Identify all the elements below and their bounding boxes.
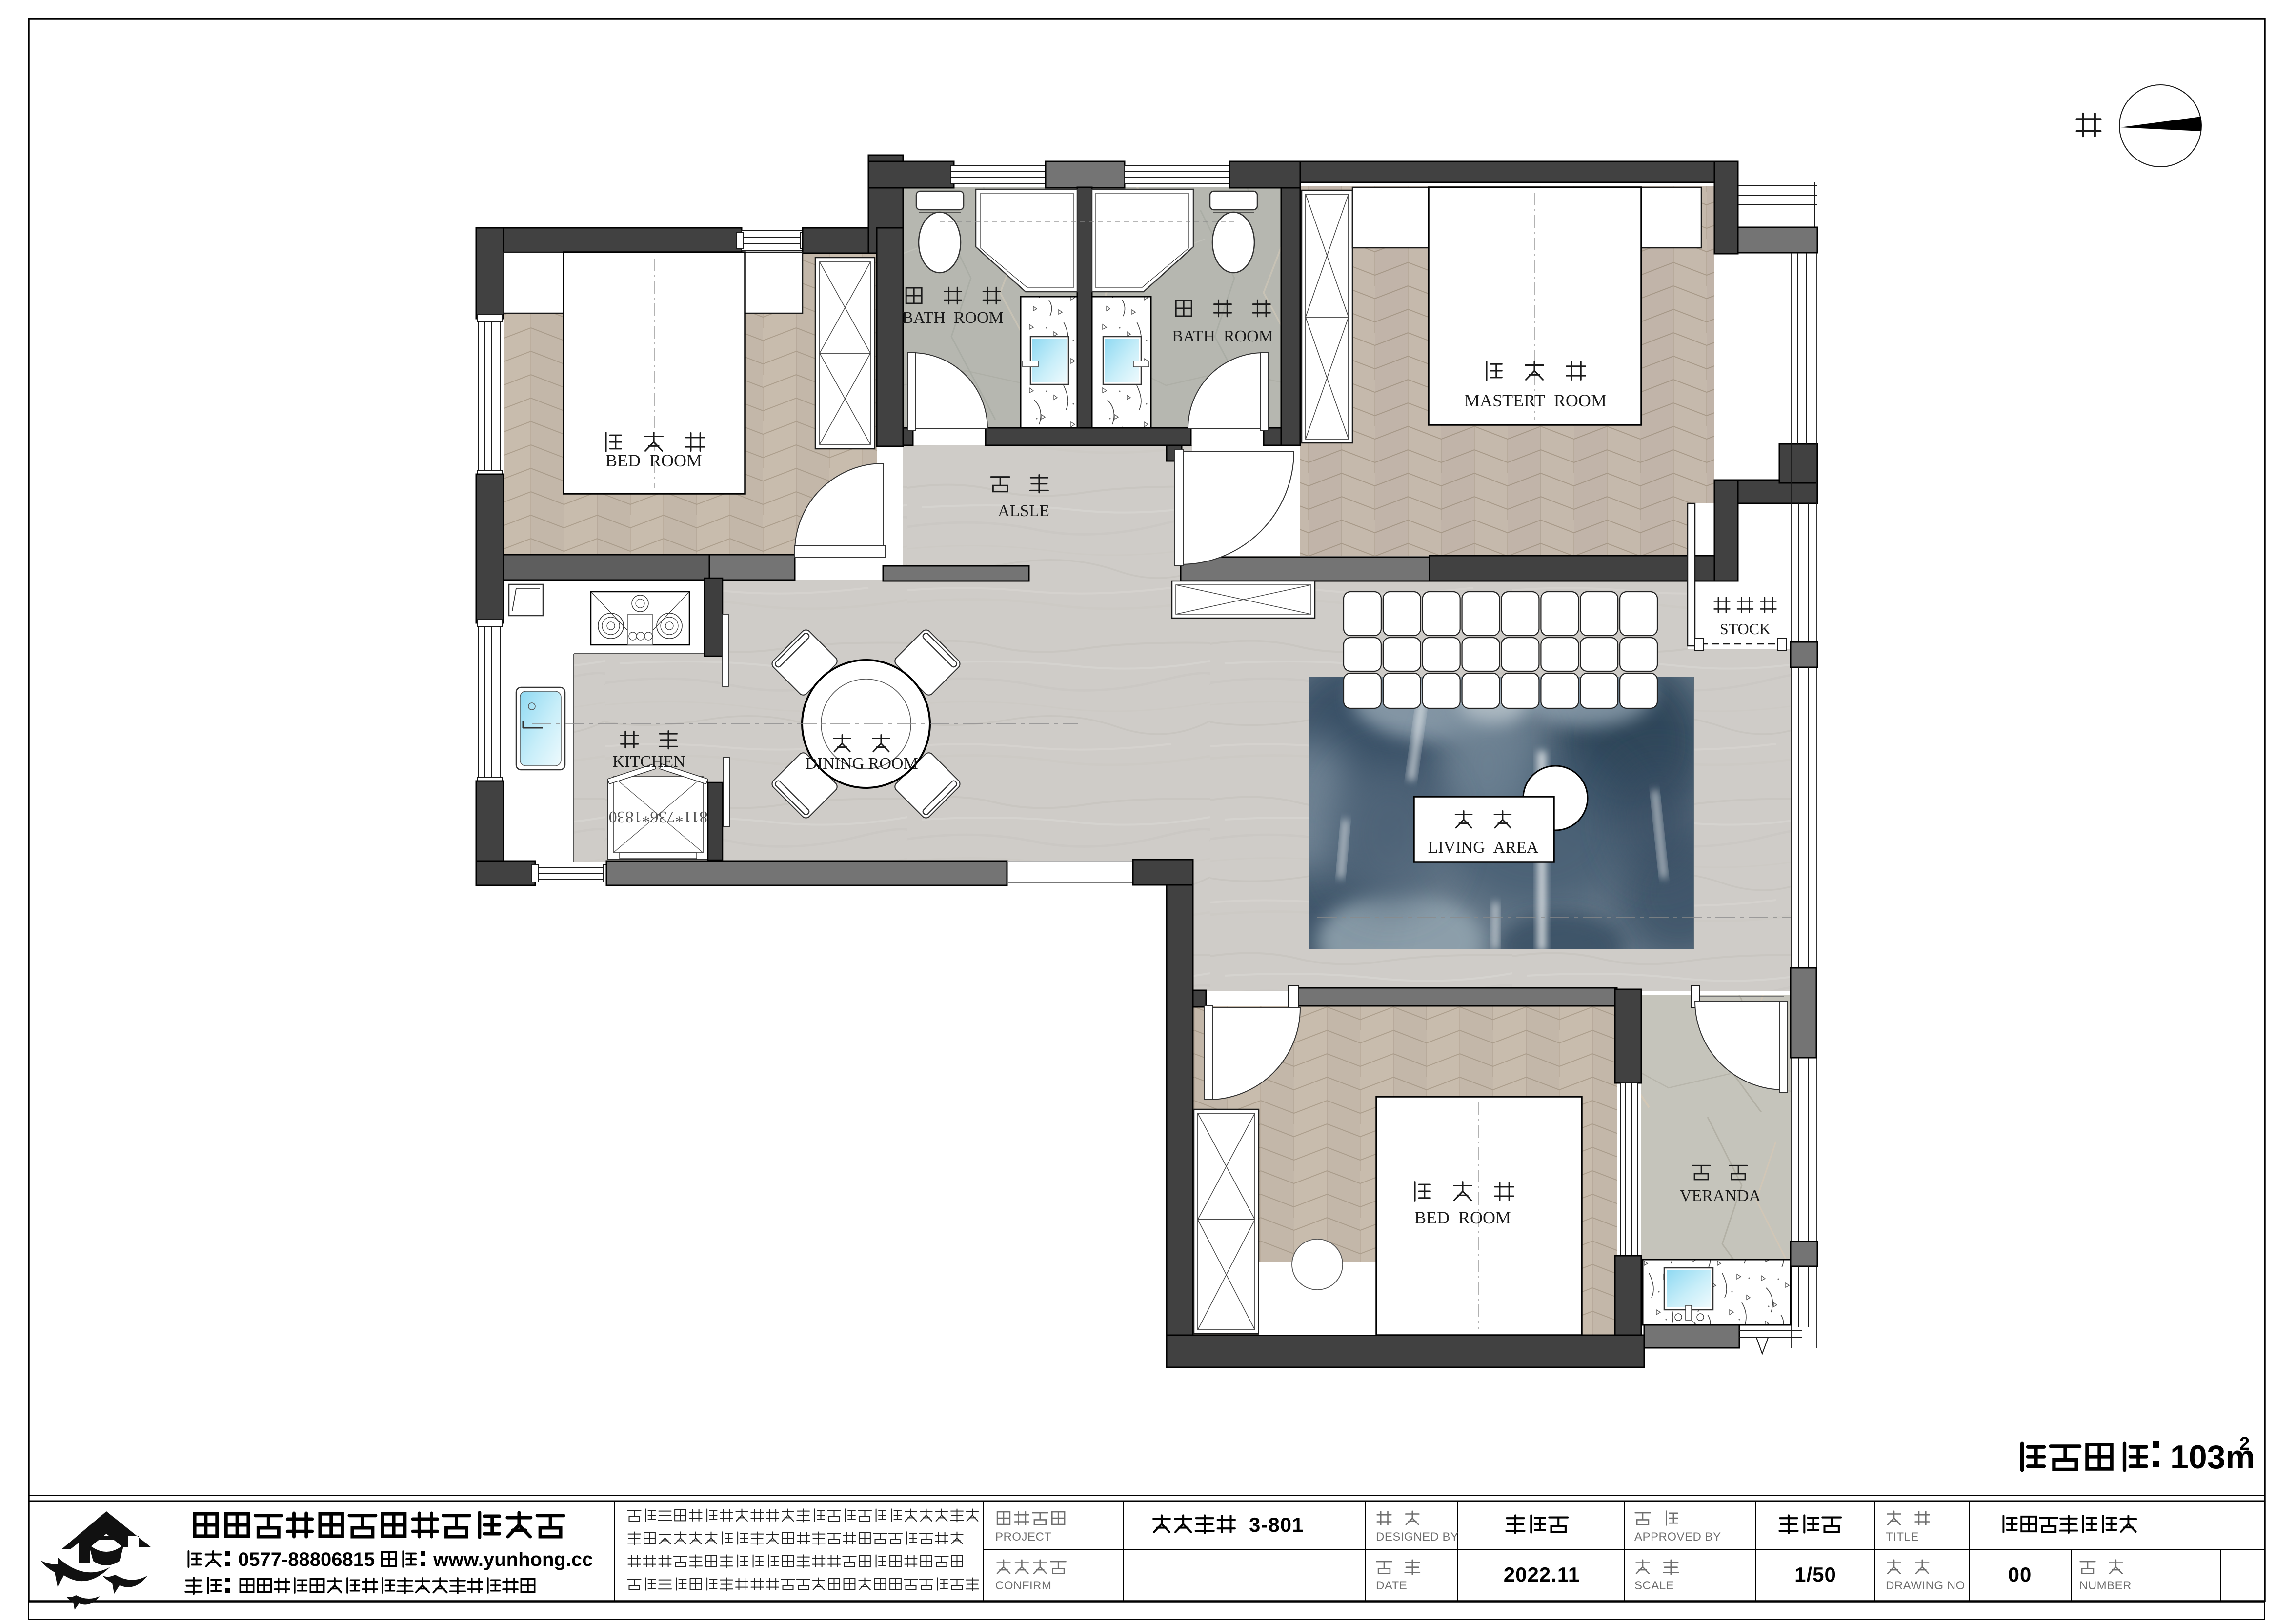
svg-text:DRAWING NO: DRAWING NO: [1886, 1579, 1965, 1592]
svg-text:2: 2: [2239, 1434, 2250, 1454]
svg-text:0577-88806815: 0577-88806815: [238, 1549, 375, 1570]
svg-text:APPROVED BY: APPROVED BY: [1634, 1530, 1721, 1543]
svg-text:DATE: DATE: [1376, 1579, 1407, 1592]
svg-text:MASTERT ROOM: MASTERT ROOM: [1464, 391, 1607, 410]
svg-text:BED ROOM: BED ROOM: [1414, 1208, 1511, 1227]
svg-text:DESIGNED BY: DESIGNED BY: [1376, 1530, 1459, 1543]
svg-text:BATH ROOM: BATH ROOM: [902, 309, 1004, 327]
svg-text:BATH ROOM: BATH ROOM: [1172, 327, 1273, 345]
svg-text:3-801: 3-801: [1249, 1513, 1304, 1536]
svg-text:ALSLE: ALSLE: [998, 502, 1049, 520]
svg-text:TITLE: TITLE: [1886, 1530, 1919, 1543]
svg-text:DINING ROOM: DINING ROOM: [805, 755, 918, 773]
svg-text:KITCHEN: KITCHEN: [612, 753, 685, 771]
svg-text:www.yunhong.cc: www.yunhong.cc: [433, 1549, 593, 1570]
svg-text:LIVING AREA: LIVING AREA: [1428, 839, 1539, 857]
svg-text:2022.11: 2022.11: [1504, 1563, 1580, 1586]
svg-text:00: 00: [2008, 1563, 2032, 1586]
svg-text:PROJECT: PROJECT: [995, 1530, 1052, 1543]
svg-text:STOCK: STOCK: [1720, 620, 1771, 638]
svg-text:SCALE: SCALE: [1634, 1579, 1674, 1592]
svg-text:VERANDA: VERANDA: [1680, 1187, 1761, 1205]
svg-text:811*736*1830: 811*736*1830: [609, 808, 708, 826]
svg-text:BED ROOM: BED ROOM: [605, 451, 702, 470]
svg-text:1/50: 1/50: [1794, 1563, 1836, 1586]
svg-text:NUMBER: NUMBER: [2079, 1579, 2132, 1592]
svg-text:CONFIRM: CONFIRM: [995, 1579, 1051, 1592]
